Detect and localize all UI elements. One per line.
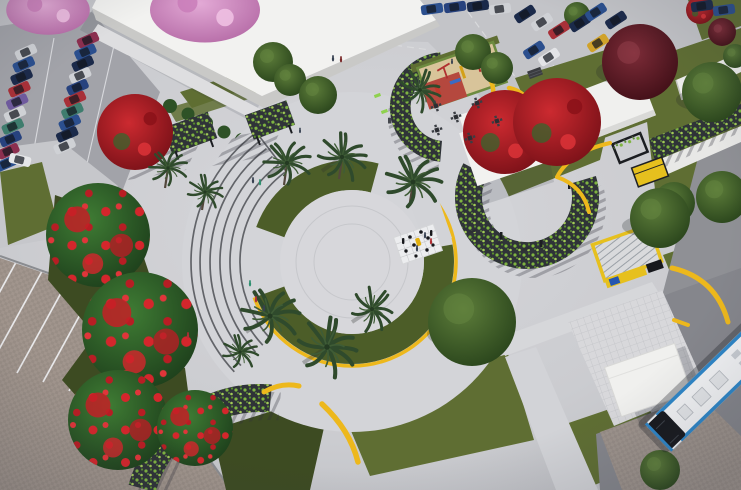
render-viewport: Aerial 3D architectural rendering of a p… xyxy=(0,0,741,490)
plaza-aerial-rendering: Aerial 3D architectural rendering of a p… xyxy=(0,0,741,490)
vignette-overlay xyxy=(0,0,741,490)
